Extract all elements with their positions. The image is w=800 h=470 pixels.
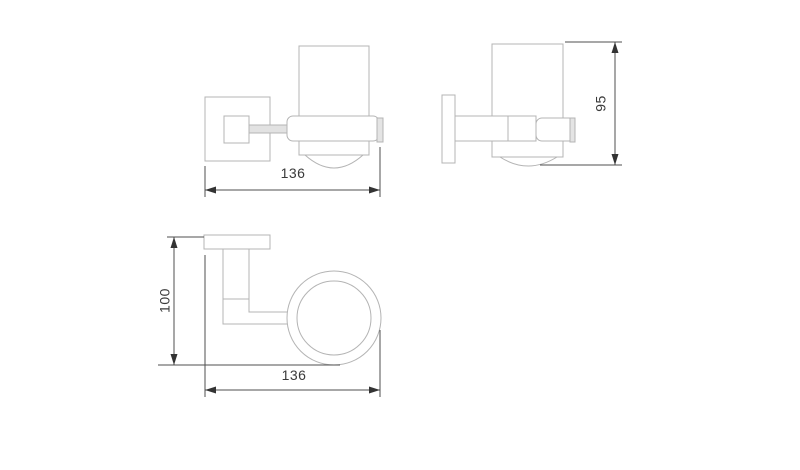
top-width-label: 136 — [274, 368, 314, 383]
side-view — [442, 44, 575, 166]
side-height-label: 95 — [594, 84, 609, 124]
front-holder-end-cap — [377, 118, 383, 142]
side-tumbler-upper — [492, 44, 563, 118]
front-width-label: 136 — [273, 166, 313, 181]
technical-drawing: 136 95 100 136 — [0, 0, 800, 470]
side-wall-plate — [442, 95, 455, 163]
front-tumbler-upper — [299, 46, 369, 116]
top-arm-inner-edge — [249, 249, 289, 312]
top-wall-plate — [204, 235, 270, 249]
front-tumbler-lower — [299, 141, 369, 155]
top-depth-label: 100 — [158, 281, 173, 321]
front-tumbler-bottom-arc — [305, 155, 363, 168]
side-tumbler-lower — [492, 141, 563, 157]
drawing-linework — [0, 0, 800, 470]
front-view — [205, 46, 383, 168]
front-holder-band — [287, 116, 379, 141]
front-mounting-block — [224, 116, 249, 143]
side-holder-band — [536, 118, 575, 141]
side-arm — [455, 116, 536, 141]
side-height-dimension — [540, 42, 622, 165]
front-arm — [249, 125, 289, 133]
top-view — [204, 235, 381, 365]
side-holder-end-cap — [570, 118, 575, 142]
top-holder-ring-inner — [297, 281, 371, 355]
top-arm-outer-edge — [223, 249, 289, 324]
